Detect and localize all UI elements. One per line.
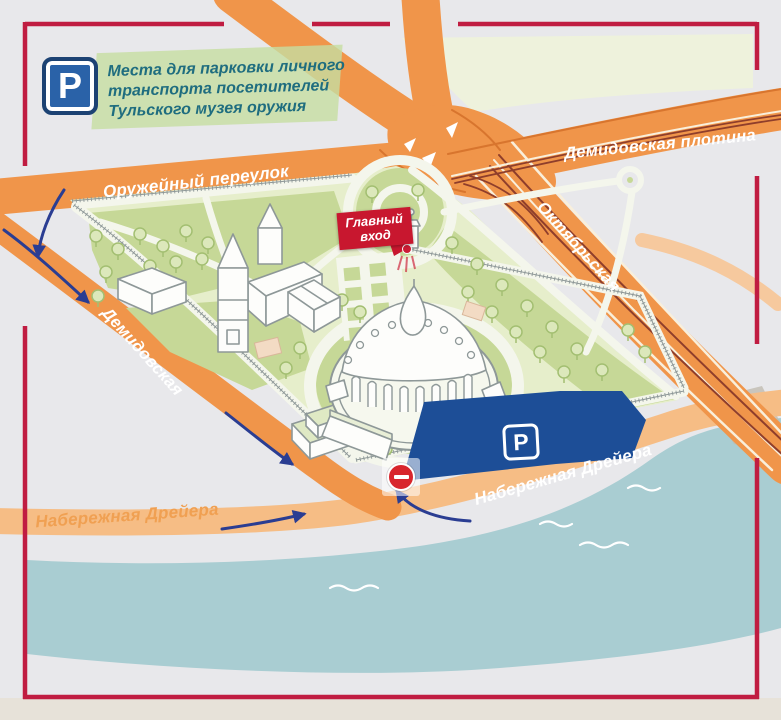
no-entry-icon: [387, 463, 415, 491]
main-entrance-label: Главный вход: [337, 207, 414, 250]
header-caption: Места для парковки личного транспорта по…: [107, 56, 346, 122]
parking-sign-letter: P: [58, 65, 82, 107]
parking-area-letter: P: [513, 428, 530, 456]
map-canvas: P Места для парковки личного транспорта …: [0, 0, 781, 720]
parking-sign-icon: P: [42, 57, 98, 115]
main-entrance-line2: вход: [359, 226, 391, 244]
parking-area-sign-icon: P: [502, 423, 540, 461]
